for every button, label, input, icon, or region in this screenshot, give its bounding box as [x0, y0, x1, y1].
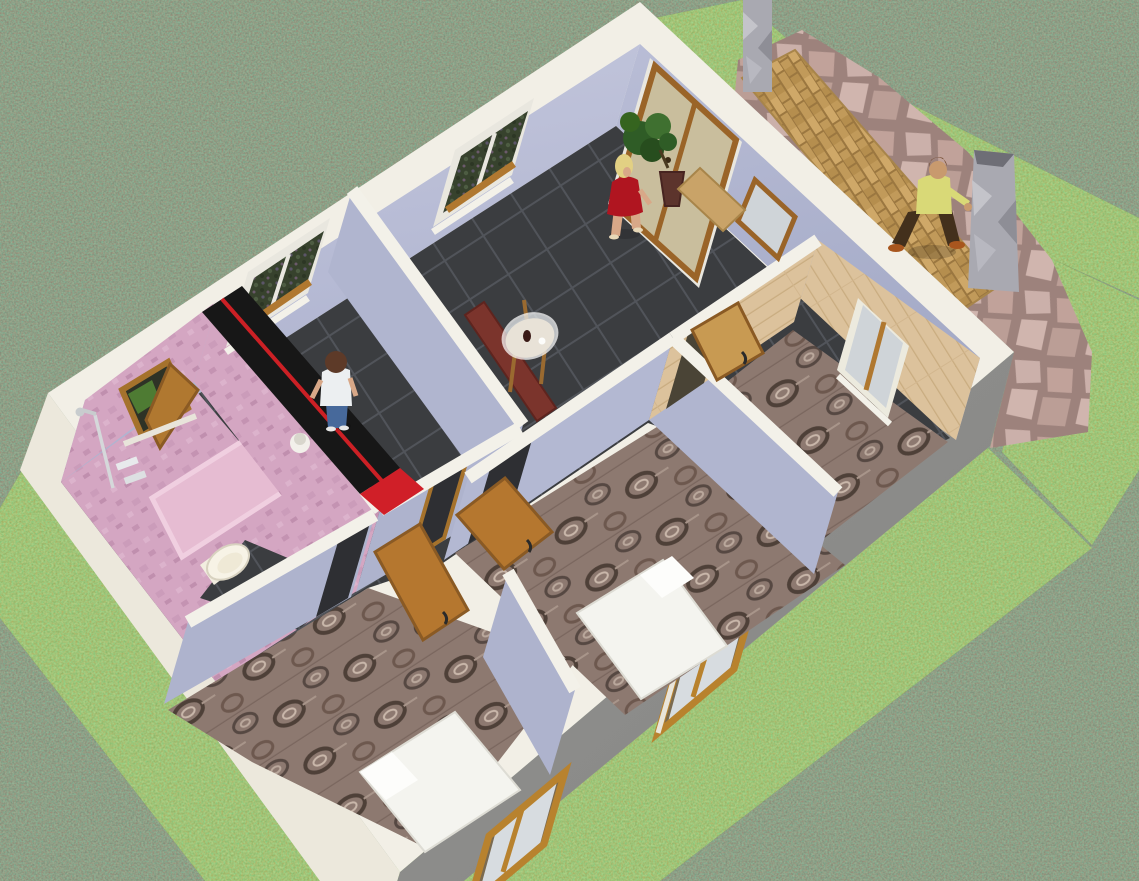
stone-column-lower: [968, 150, 1019, 292]
stone-column-upper: [743, 0, 772, 92]
table-bottle: [523, 330, 531, 342]
shoe: [339, 426, 349, 431]
house-3d-view[interactable]: [0, 0, 1139, 881]
shoe: [633, 228, 643, 233]
yellow-shirt: [916, 174, 952, 214]
table-cup: [539, 338, 546, 345]
white-top: [320, 367, 352, 406]
shoe: [888, 244, 904, 252]
shadow: [908, 245, 956, 259]
head: [929, 161, 947, 179]
coffee-machine-lid: [294, 433, 306, 445]
red-dress: [607, 176, 643, 216]
brown-hair: [325, 351, 347, 373]
face: [623, 167, 631, 177]
shoe: [609, 235, 619, 240]
render-viewport: [0, 0, 1139, 881]
shoe: [949, 241, 965, 249]
hand: [964, 203, 972, 211]
foliage-clump: [620, 112, 640, 132]
foliage-clump: [659, 133, 677, 151]
shoe: [326, 427, 336, 432]
shower-head: [76, 408, 85, 417]
